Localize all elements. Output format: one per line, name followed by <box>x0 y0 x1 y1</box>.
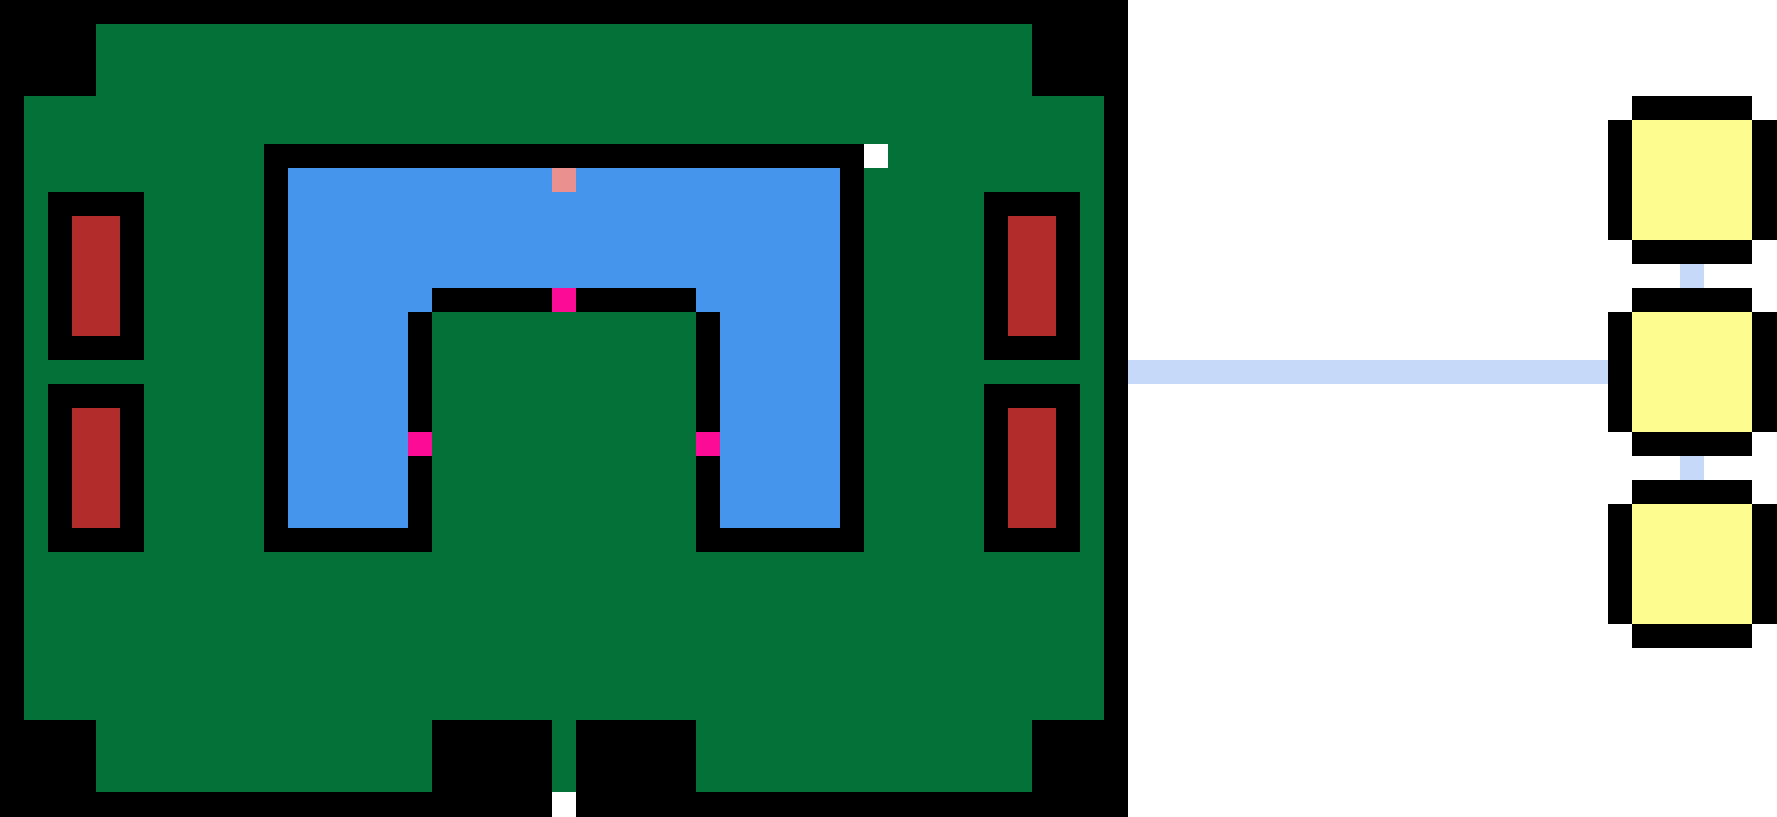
red-door-right-lower[interactable] <box>1008 408 1056 528</box>
bottom-notch-right <box>576 720 696 792</box>
pink-marker-top[interactable] <box>552 288 576 312</box>
map-corridor-rooms-1-2 <box>1680 264 1704 288</box>
moat-corner-right <box>696 288 720 312</box>
room1-fill[interactable] <box>1632 120 1752 240</box>
red-door-right-upper[interactable] <box>1008 216 1056 336</box>
map-corridor-horizontal <box>1128 360 1608 384</box>
red-door-left-upper[interactable] <box>72 216 120 336</box>
salmon-marker[interactable] <box>552 168 576 192</box>
game-viewport[interactable] <box>0 0 1777 817</box>
map-corridor-rooms-2-3 <box>1680 456 1704 480</box>
moat-corner-left <box>408 288 432 312</box>
white-door-top-right[interactable] <box>864 144 888 168</box>
pink-marker-left[interactable] <box>408 432 432 456</box>
white-door-bottom[interactable] <box>552 792 576 817</box>
red-door-left-lower[interactable] <box>72 408 120 528</box>
pink-marker-right[interactable] <box>696 432 720 456</box>
screenshot-root <box>0 0 1777 817</box>
room2-fill[interactable] <box>1632 312 1752 432</box>
room3-fill[interactable] <box>1632 504 1752 624</box>
center-island <box>432 312 696 552</box>
bottom-notch-left <box>432 720 552 792</box>
